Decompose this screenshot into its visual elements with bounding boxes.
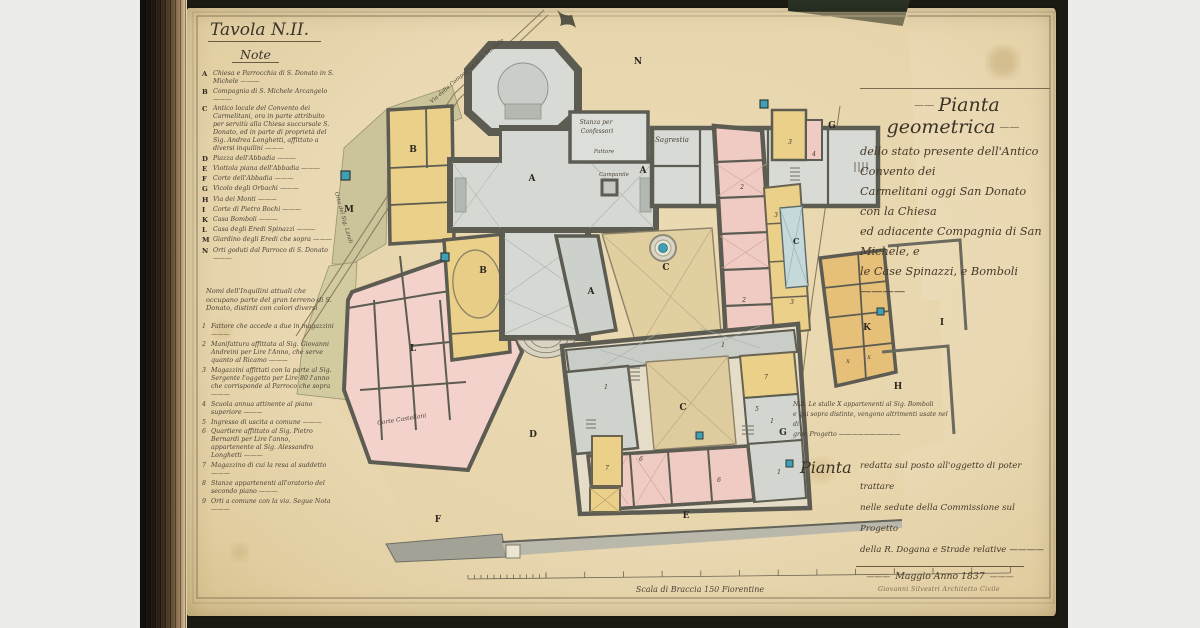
legend-heading: Note [232, 47, 279, 63]
legend-entry-G: GVicolo degli Orbachi [202, 185, 335, 194]
legend-entry-N: NOrti goduti dal Parroco di S. Donato [202, 247, 335, 263]
project-note-lines: redatta sul posto all'oggetto di poter t… [860, 456, 1046, 561]
nb-line-2: e qui sopra distinte, vengono altrimenti… [793, 410, 955, 430]
tenants-intro: Nomi dell'Inquilini attuali che occupano… [206, 287, 335, 314]
signature: Giovanni Silvestri Architetto Civile [878, 586, 1053, 593]
map-title: Pianta geometrica [860, 94, 1050, 138]
project-note: Pianta redatta sul posto all'oggetto di … [798, 456, 1046, 582]
project-note-line-1: redatta sul posto all'oggetto di poter t… [860, 456, 1046, 498]
date-line: Maggio Anno 1837 [856, 567, 1024, 582]
legend-title: Tavola N.II. [208, 20, 321, 42]
map-subtitle-line-2: Carmelitani oggi San Donato con la Chies… [860, 182, 1050, 222]
sheet-text-layer: Tavola N.II. Note AChiesa e Parrocchia d… [0, 0, 1200, 628]
nb-line-1: N.B. Le stalle X appartenenti al Sig. Bo… [793, 400, 955, 410]
tenants-list: 1Fattore che accede a due in magazzini2M… [202, 323, 335, 513]
legend-entry-C: CAntico locale del Convento dei Carmelit… [202, 105, 335, 153]
map-subtitle: dello stato presente dell'Antico Convent… [860, 142, 1050, 302]
legend-entry-A: AChiesa e Parrocchia di S. Donato in S. … [202, 70, 335, 86]
legend-entries: AChiesa e Parrocchia di S. Donato in S. … [202, 70, 335, 263]
project-note-line-3: della R. Dogana e Strade relative ———— [860, 540, 1046, 561]
legend-entry-E: EViottola piana dell'Abbadia [202, 165, 335, 174]
title-block: Pianta geometrica dello stato presente d… [860, 88, 1050, 302]
legend-entry-F: FCorte dell'Abbadia [202, 175, 335, 184]
legend-entry-M: MGiardino degli Eredi che sopra [202, 236, 335, 245]
map-subtitle-line-4: le Case Spinazzi, e Bomboli ———— [860, 262, 1050, 302]
tenant-entry-1: 1Fattore che accede a due in magazzini [202, 323, 335, 339]
tenant-entry-7: 7Magazzino di cui la resa al suddetto [202, 462, 335, 478]
legend-entry-K: KCasa Bomboli [202, 216, 335, 225]
tenant-entry-9: 9Orti a comune con la via. Segue Nota [202, 498, 335, 514]
tenant-entry-4: 4Scuola annua attinente al piano superio… [202, 401, 335, 417]
legend-entry-H: HVia dei Monti [202, 196, 335, 205]
project-note-lead: Pianta [800, 458, 852, 477]
map-subtitle-line-3: ed adiacente Compagnia di San Michele, e [860, 222, 1050, 262]
nb-note: N.B. Le stalle X appartenenti al Sig. Bo… [793, 400, 955, 440]
project-note-line-2: nelle sedute della Commissione sul Proge… [860, 498, 1046, 540]
tenant-entry-5: 5Ingresso di uscita a comune [202, 419, 335, 427]
nb-line-3: gran Progetto —————————— [793, 430, 955, 440]
map-subtitle-line-1: dello stato presente dell'Antico Convent… [860, 142, 1050, 182]
tenant-entry-6: 6Quartiere affittato al Sig. Pietro Bern… [202, 428, 335, 460]
tenant-entry-2: 2Manifattura affittata al Sig. Giovanni … [202, 341, 335, 365]
legend-entry-I: ICorte di Pietro Bochi [202, 206, 335, 215]
legend-entry-L: LCasa degli Eredi Spinazzi [202, 226, 335, 235]
legend: Tavola N.II. Note AChiesa e Parrocchia d… [202, 20, 335, 516]
legend-entry-D: DPiazza dell'Abbadia [202, 155, 335, 164]
legend-entry-B: BCompagnia di S. Michele Arcangelo [202, 88, 335, 104]
tenant-entry-8: 8Stanze appartenenti all'oratorio del se… [202, 480, 335, 496]
tenant-entry-3: 3Magazzini affittati con la parte al Sig… [202, 367, 335, 399]
